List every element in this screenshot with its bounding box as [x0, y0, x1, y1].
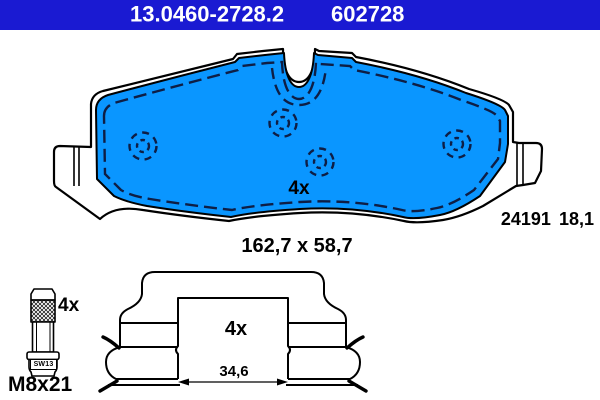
pad-thickness: 18,1 [559, 209, 594, 229]
line-art-canvas [0, 0, 600, 400]
clip-quantity-label: 4x [225, 319, 247, 339]
bolt-thread-label: M8x21 [8, 374, 72, 395]
bolt-quantity-label: 4x [58, 296, 79, 315]
bolt-head-size-label: SW13 [30, 359, 57, 370]
pad-dimensions-label: 162,7 x 58,7 [241, 236, 352, 256]
pad-quantity-label: 4x [288, 179, 309, 198]
title-bar: 13.0460-2728.2 602728 [0, 0, 600, 30]
bolt-thread-knurl [31, 300, 55, 322]
wva-thickness-label: 2419118,1 [501, 210, 594, 228]
brake-pad-technical-drawing: 13.0460-2728.2 602728 4x 162,7 x 58,7 24… [0, 0, 600, 400]
catalog-number: 13.0460-2728.2 [130, 1, 284, 27]
wva-number: 24191 [501, 209, 551, 229]
article-number: 602728 [331, 1, 404, 27]
clip-width-label: 34,6 [219, 364, 248, 379]
bolt-tip [31, 289, 55, 300]
